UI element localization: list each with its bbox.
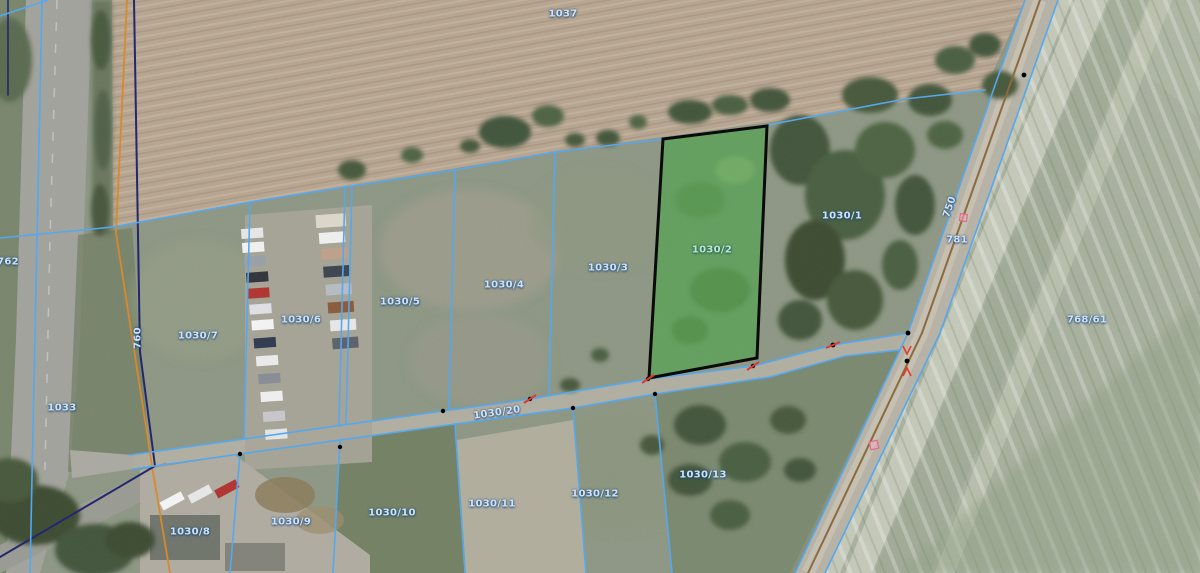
map-graphics <box>0 0 1200 573</box>
parcel-label-1030-9: 1030/9 <box>271 517 311 528</box>
parcel-label-1030-6: 1030/6 <box>281 315 321 326</box>
parcel-label-1030-8: 1030/8 <box>170 527 210 538</box>
parcel-label-762: 762 <box>0 257 19 268</box>
parcel-label-1030-5: 1030/5 <box>380 297 420 308</box>
photo-grain <box>0 0 1200 573</box>
parcel-label-1030-10: 1030/10 <box>368 508 416 519</box>
parcel-label-1030-12: 1030/12 <box>571 489 619 500</box>
aerial-photo-layer <box>0 0 1200 573</box>
parcel-label-781: 781 <box>946 235 968 246</box>
parcel-label-1030-4: 1030/4 <box>484 280 524 291</box>
parcel-label-1033: 1033 <box>47 403 76 414</box>
parcel-label-1037: 1037 <box>548 9 577 20</box>
parcel-label-1030-1: 1030/1 <box>822 211 862 222</box>
parcel-label-1030-11: 1030/11 <box>468 499 516 510</box>
parcel-label-1030-7: 1030/7 <box>178 331 218 342</box>
parcel-label-1030-3: 1030/3 <box>588 263 628 274</box>
parcel-label-1030-2: 1030/2 <box>692 245 732 256</box>
parcel-label-1030-13: 1030/13 <box>679 470 727 481</box>
parcel-label-768-61: 768/61 <box>1067 315 1107 326</box>
road-label-760: 760 <box>133 327 144 349</box>
aerial-cadastral-map[interactable]: 1037 762 1033 760 1030/7 1030/6 1030/5 1… <box>0 0 1200 573</box>
